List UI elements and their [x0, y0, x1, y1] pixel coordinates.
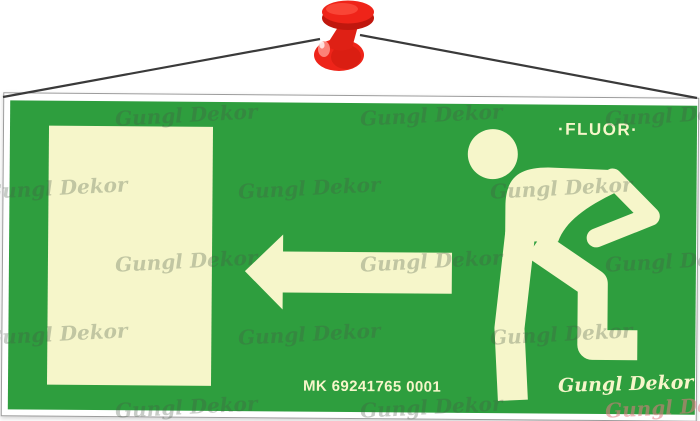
string-right — [360, 35, 697, 98]
running-man-head — [468, 129, 518, 179]
product-code-label: MK 69241765 0001 — [303, 378, 441, 396]
sign-green-panel: ·FLUOR· MK 69241765 0001 Gungl Dekor — [8, 100, 697, 414]
fluor-label: ·FLUOR· — [558, 120, 658, 141]
brand-signature: Gungl Dekor — [558, 371, 694, 397]
running-man-front-leg — [509, 233, 520, 400]
door-icon — [47, 126, 213, 386]
string-left — [3, 39, 320, 97]
arrow-left-icon — [245, 234, 453, 311]
running-man-back-leg — [534, 244, 638, 345]
pushpin-icon — [314, 1, 374, 72]
running-man-icon — [466, 129, 651, 401]
sign-pictograms — [8, 100, 697, 414]
sign-card: ·FLUOR· MK 69241765 0001 Gungl Dekor — [1, 92, 700, 421]
sign-photo-scene: ·FLUOR· MK 69241765 0001 Gungl Dekor Gun… — [0, 0, 700, 421]
